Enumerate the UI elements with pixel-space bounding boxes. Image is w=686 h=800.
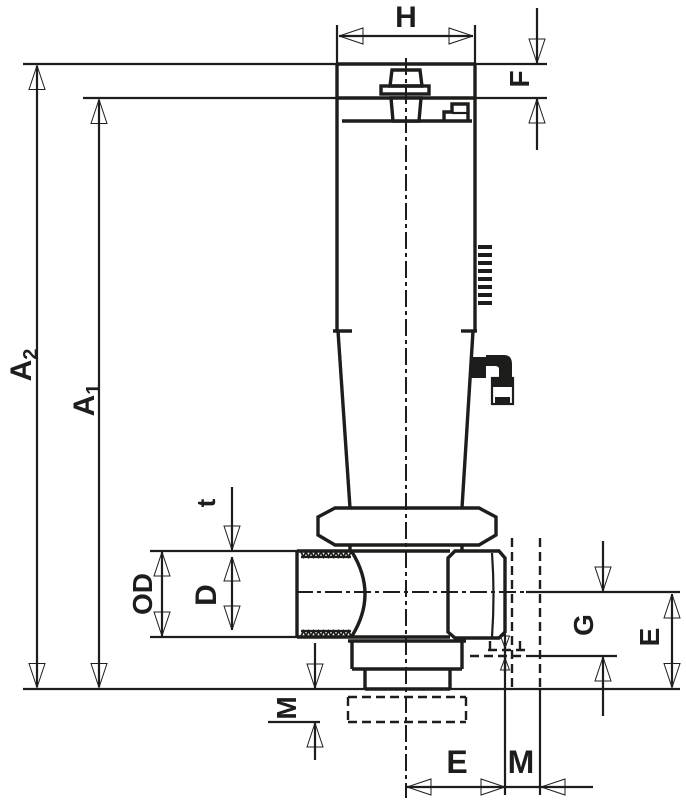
dim-label-M-left: M [271,696,302,719]
dim-label-M-bottom: M [508,744,535,780]
dim-label-OD: OD [127,573,158,615]
valve-dimension-drawing: H F A2 A1 t OD D M E M G E [0,0,686,800]
dim-label-G: G [568,614,599,636]
technical-drawing-canvas: H F A2 A1 t OD D M E M G E [0,0,686,800]
dim-label-E-bottom: E [446,744,467,780]
dim-label-D: D [190,584,223,606]
dim-label-t: t [191,498,221,507]
dim-label-F: F [504,70,535,87]
dim-label-H: H [395,1,417,34]
right-port-boss [448,551,505,638]
dim-label-E-right: E [634,628,665,647]
